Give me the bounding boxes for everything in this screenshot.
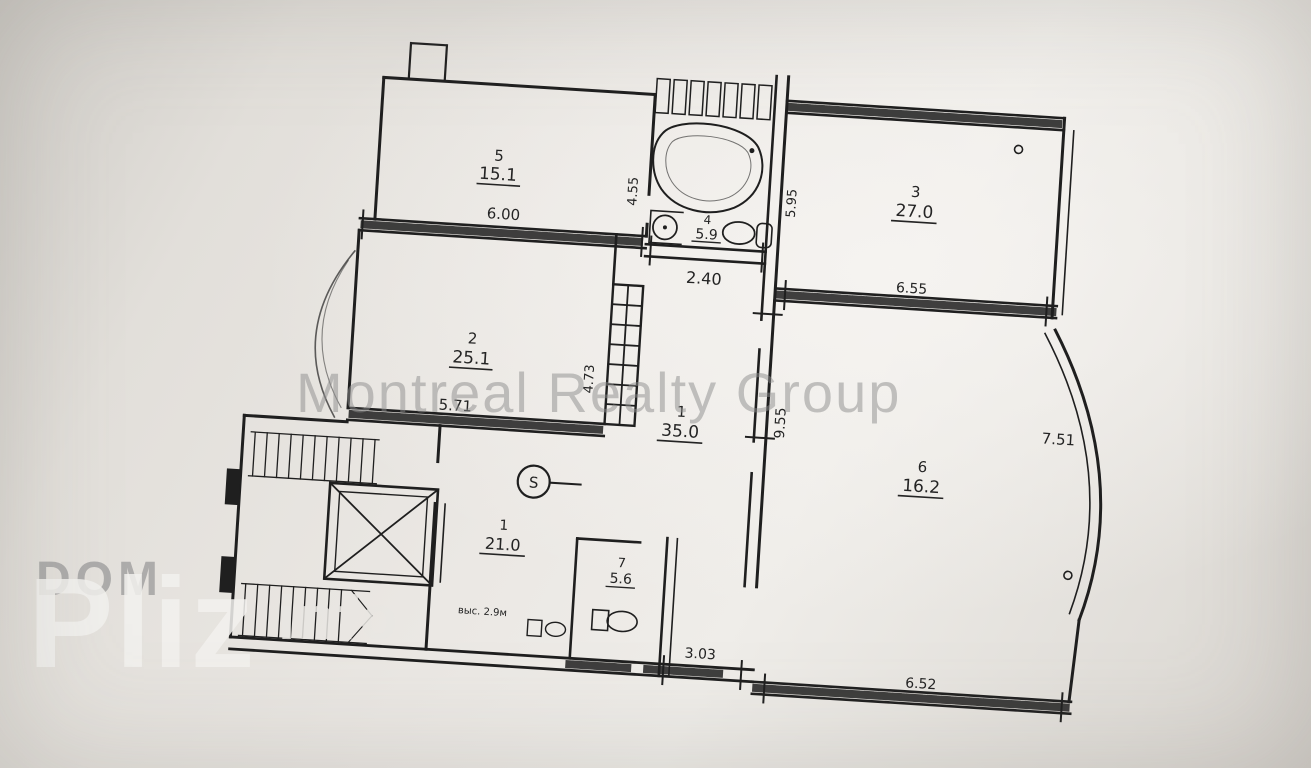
- room2-number: 2: [467, 329, 478, 348]
- s-marker: [517, 465, 582, 501]
- door-knob-circle: [1014, 145, 1022, 153]
- dim-6-55: 6.55: [896, 280, 928, 298]
- wc-walls: [569, 532, 677, 676]
- door-knob-circle-2: [1064, 571, 1072, 579]
- room-top-left-number: 5: [494, 147, 505, 166]
- stairs-upper: [249, 432, 380, 484]
- wc-number: 7: [617, 556, 626, 571]
- dim-3-03: 3.03: [684, 645, 716, 663]
- dim-2-40: 2.40: [685, 268, 722, 289]
- s-marker-label: S: [528, 473, 539, 492]
- toilet-tank-icon: [592, 610, 609, 631]
- dim-4-55: 4.55: [625, 176, 642, 206]
- room-top-left-area: 15.1: [478, 164, 517, 186]
- bathroom-number: 4: [703, 213, 712, 227]
- room6-number: 6: [917, 458, 928, 477]
- room3-number: 3: [910, 183, 921, 202]
- elevator-shaft: [324, 483, 438, 586]
- room3-area: 27.0: [895, 201, 934, 223]
- dim-5-95: 5.95: [784, 188, 801, 218]
- wc-area: 5.6: [609, 571, 632, 588]
- kitchen-area: 21.0: [484, 534, 521, 555]
- dim-6-52: 6.52: [905, 675, 937, 693]
- height-annotation: выс. 2.9м: [458, 605, 508, 619]
- faucet-dot: [749, 148, 754, 153]
- room6-area: 16.2: [902, 476, 941, 498]
- dim-6-00: 6.00: [486, 204, 520, 224]
- toilet-icon: [607, 611, 638, 633]
- bathroom-tiles: [655, 79, 772, 120]
- watermark-center: Montreal Realty Group: [296, 360, 901, 425]
- scanned-floorplan-photo: Montreal Realty Group: [0, 0, 1311, 768]
- watermark-info: info: [278, 588, 400, 650]
- bidet-icon: [722, 221, 755, 245]
- bathroom-bottom-wall: [645, 244, 766, 264]
- kitchen-number: 1: [499, 518, 509, 535]
- dim-7-51: 7.51: [1041, 429, 1075, 449]
- entry-fixtures: [527, 620, 566, 638]
- watermark-pliz: Pliz: [28, 560, 257, 688]
- sink-icon: [756, 223, 772, 248]
- wall-pier: [225, 468, 241, 505]
